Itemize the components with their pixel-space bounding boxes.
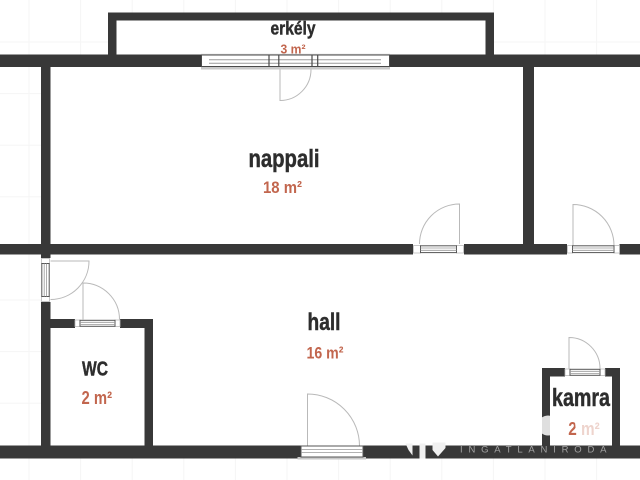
svg-text:3 m²: 3 m² [281, 43, 306, 57]
svg-text:erkély: erkély [271, 19, 316, 39]
svg-text:nappali: nappali [249, 145, 320, 173]
svg-text:16 m²: 16 m² [307, 343, 344, 362]
svg-text:WC: WC [82, 359, 108, 381]
svg-text:INGATLANIRODA: INGATLANIRODA [460, 445, 612, 456]
svg-text:kamra: kamra [552, 384, 611, 412]
svg-text:2 m²: 2 m² [82, 388, 113, 408]
svg-text:18 m²: 18 m² [263, 178, 302, 197]
svg-text:hall: hall [308, 309, 341, 336]
